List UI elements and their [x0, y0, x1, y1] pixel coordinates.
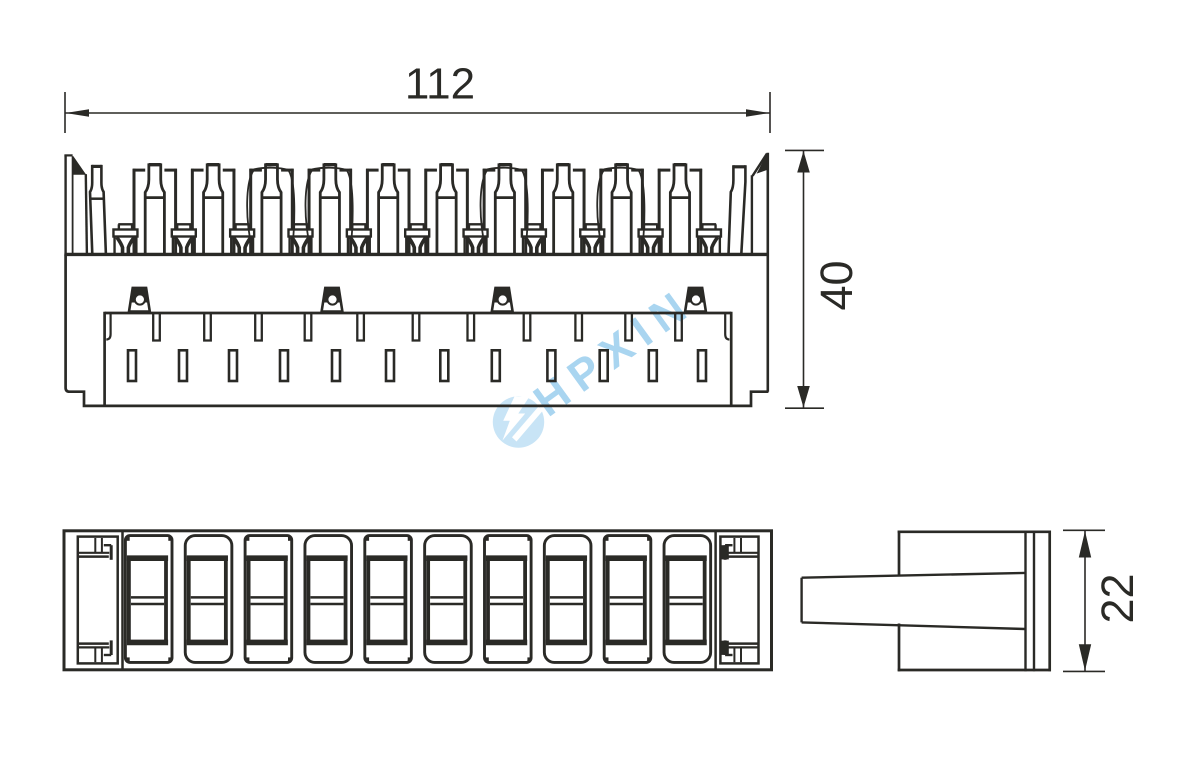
svg-text:22: 22: [1092, 573, 1143, 623]
svg-text:40: 40: [811, 260, 862, 310]
svg-text:112: 112: [405, 60, 475, 109]
